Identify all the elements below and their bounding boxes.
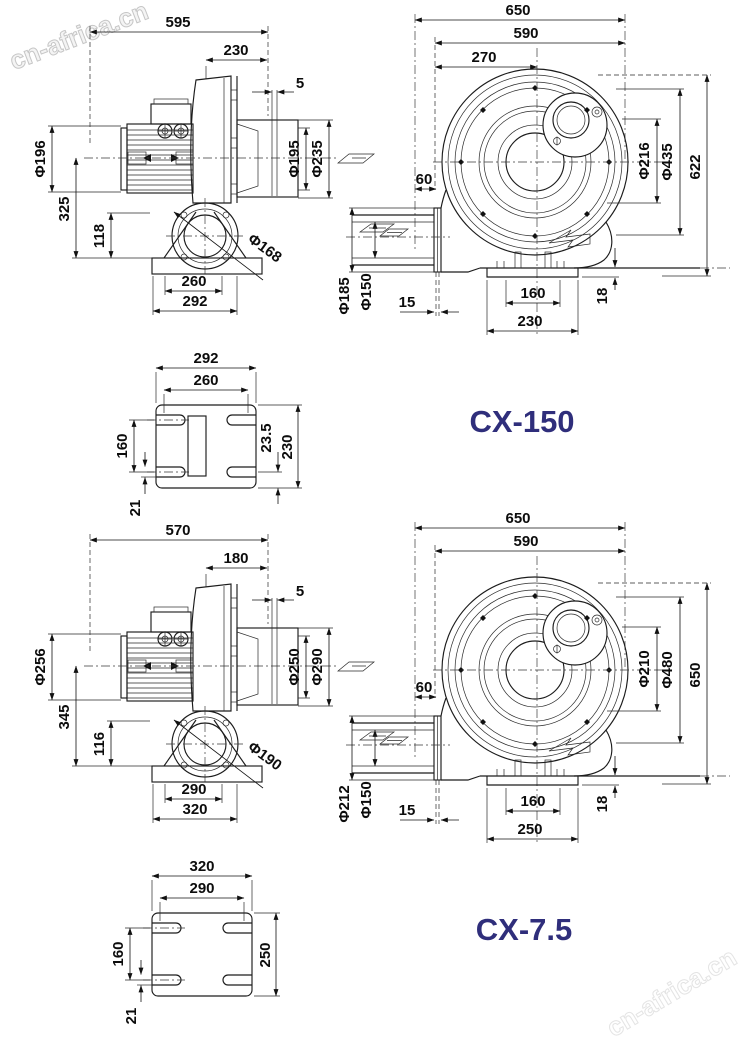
- dim-foot-length: 230: [517, 313, 542, 330]
- dim-port-diameter: Φ210: [636, 650, 653, 687]
- dim-pipe-diameter: Φ150: [358, 781, 375, 818]
- dim-body-width: 590: [513, 25, 538, 42]
- dim-overall-height: 622: [687, 154, 704, 179]
- dim-motor-diameter: Φ196: [32, 140, 49, 177]
- dim-port-diameter: Φ216: [636, 142, 653, 179]
- dim-pipe-diameter: Φ150: [358, 273, 375, 310]
- dim-duct-length: 60: [416, 171, 433, 188]
- dim-foot-slots: 160: [520, 793, 545, 810]
- dim-base-height: 118: [91, 224, 108, 248]
- dim-body-width: 590: [513, 533, 538, 550]
- watermark-text: cn-africa.cn: [5, 0, 152, 76]
- dim-flange-diameter: Φ185: [336, 277, 353, 314]
- dim-gap: 5: [296, 75, 304, 92]
- dim-outlet-outer: Φ290: [309, 648, 326, 685]
- dim-flange-offset: 15: [399, 294, 416, 311]
- dim-inlet-diameter: Φ190: [245, 739, 285, 775]
- dim-overall-width: 650: [505, 2, 530, 19]
- dim-foot-length: 250: [517, 821, 542, 838]
- dim-bolt-circle: Φ435: [659, 143, 676, 180]
- dim-bolt-circle: Φ480: [659, 651, 676, 688]
- cx75-front-dimensions: 650 590 60 Φ210 Φ480 650 Φ212 Φ150 15 16…: [336, 510, 704, 838]
- dim-flange-offset: 15: [399, 802, 416, 819]
- dim-center-height: 345: [56, 704, 73, 729]
- dim-holes-y: 160: [114, 433, 131, 458]
- dim-center-height: 325: [56, 196, 73, 221]
- dim-outlet-inner: Φ195: [286, 140, 303, 177]
- dim-foot-slots: 160: [520, 285, 545, 302]
- dim-base-thickness: 18: [594, 288, 611, 305]
- dim-base-thickness: 18: [594, 796, 611, 813]
- dim-slot-width: 21: [123, 1008, 140, 1025]
- technical-drawing: cn-africa.cn cn-africa.cn 595 230 5 Φ196…: [0, 0, 750, 1052]
- model-label-cx75: CX-7.5: [476, 912, 572, 947]
- model-label-cx150: CX-150: [469, 404, 574, 439]
- dim-outlet-outer: Φ235: [309, 140, 326, 177]
- dim-gap: 5: [296, 583, 304, 600]
- dim-holes-x: 260: [193, 372, 218, 389]
- dim-holes-x: 290: [189, 880, 214, 897]
- dim-slot-width: 21: [127, 500, 144, 517]
- dim-housing-width: 180: [223, 550, 248, 567]
- dim-outlet-inner: Φ250: [286, 648, 303, 685]
- dim-foot-holes: 260: [181, 273, 206, 290]
- dim-base-height: 116: [91, 732, 108, 756]
- dim-foot-width: 320: [182, 801, 207, 818]
- dim-foot-width: 292: [182, 293, 207, 310]
- dim-overall-width: 595: [165, 14, 190, 31]
- dim-housing-width: 230: [223, 42, 248, 59]
- dim-foot-holes: 290: [181, 781, 206, 798]
- cx150-base-dimensions: 292 260 160 21 23.5 230: [114, 350, 296, 516]
- dim-overall-width: 570: [165, 522, 190, 539]
- dim-duct-length: 60: [416, 679, 433, 696]
- dim-width: 320: [189, 858, 214, 875]
- dim-holes-y: 160: [110, 941, 127, 966]
- dim-motor-diameter: Φ256: [32, 648, 49, 685]
- dim-width: 292: [193, 350, 218, 367]
- dim-edge-offset: 23.5: [258, 423, 275, 452]
- dim-depth: 230: [279, 434, 296, 459]
- cx150-front-dimensions: 650 590 270 60 Φ216 Φ435 622 Φ185 Φ150 1…: [336, 2, 704, 330]
- cx75-base-dimensions: 320 290 160 21 250: [110, 858, 274, 1024]
- watermark-bottom-right: cn-africa.cn: [601, 942, 742, 1043]
- drawing-sheet: cn-africa.cn cn-africa.cn 595 230 5 Φ196…: [0, 0, 750, 1052]
- watermark-top-left: cn-africa.cn: [5, 0, 152, 76]
- dim-overall-height: 650: [687, 662, 704, 687]
- dim-flange-diameter: Φ212: [336, 785, 353, 822]
- dim-offset-width: 270: [471, 49, 496, 66]
- dim-overall-width: 650: [505, 510, 530, 527]
- dim-inlet-diameter: Φ168: [245, 231, 285, 267]
- watermark-text: cn-africa.cn: [601, 942, 742, 1043]
- dim-depth: 250: [257, 942, 274, 967]
